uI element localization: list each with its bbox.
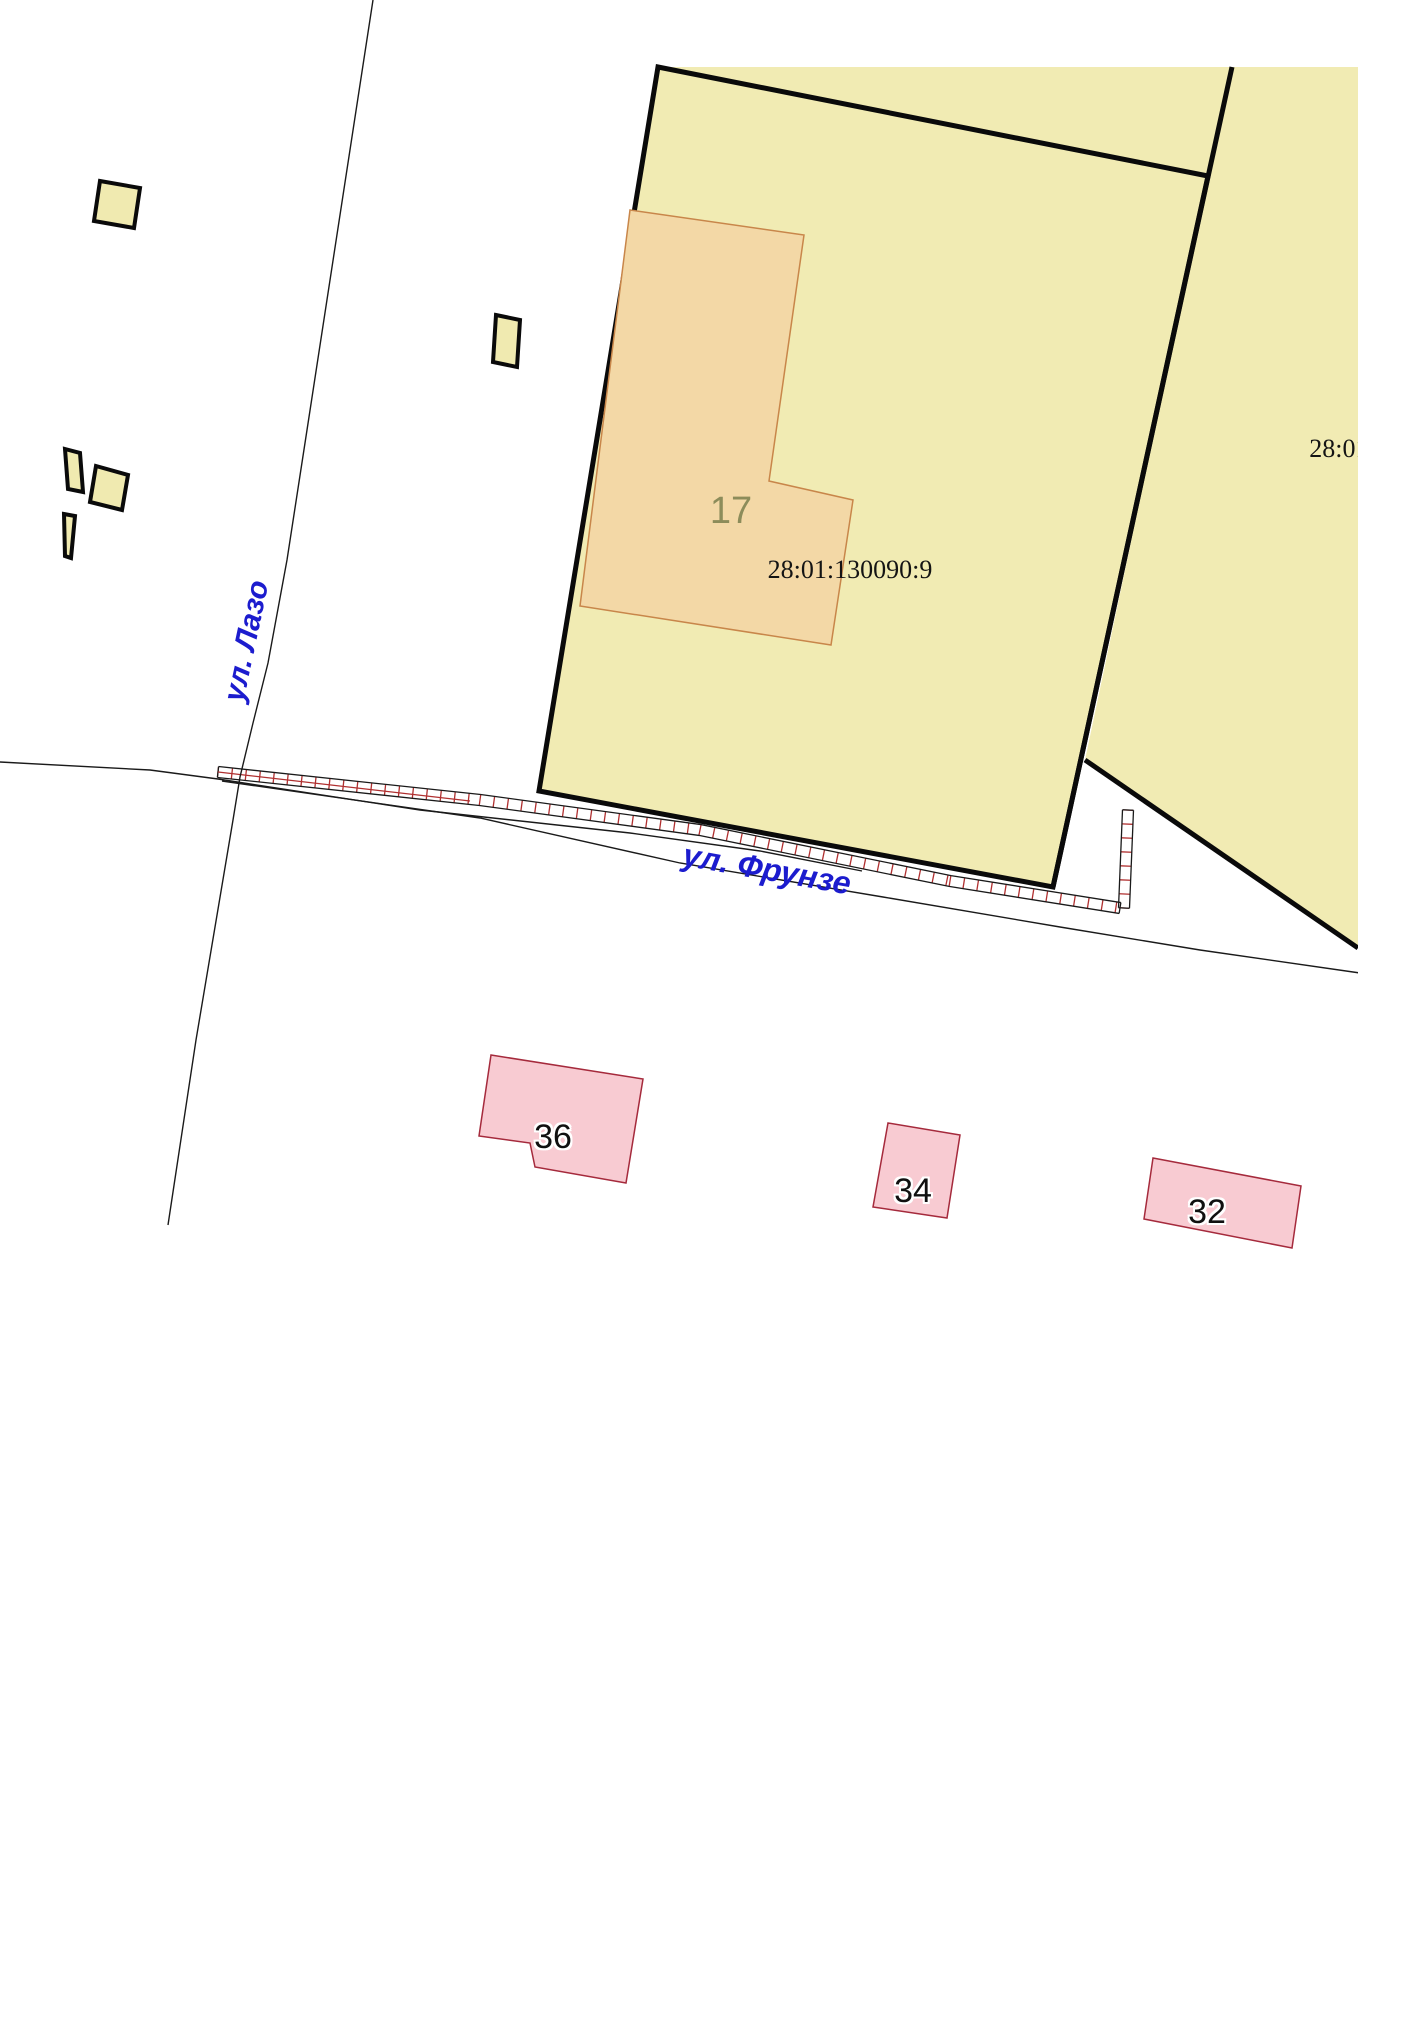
fence-line [1119, 810, 1123, 908]
fence-hatch-tick [946, 875, 948, 886]
fence-hatch-tick [604, 812, 605, 823]
fence-hatch-tick [726, 830, 728, 841]
fence-hatch-tick [454, 792, 455, 803]
fence-hatch-tick [673, 821, 674, 832]
fence-hatch-tick [905, 867, 907, 878]
road-line-lazo [168, 0, 373, 1225]
fence-hatch-tick [963, 878, 965, 889]
fence-hatch-tick [822, 850, 824, 861]
fence-hatch-tick [590, 810, 591, 821]
fence-hatch-tick [918, 869, 920, 880]
fence-hatch-tick [781, 841, 783, 852]
house-36[interactable] [479, 1055, 643, 1183]
fence-hatch-tick [426, 789, 427, 800]
small-building-1[interactable] [94, 181, 140, 228]
fence-hatch-tick [1046, 891, 1048, 902]
fence-hatch-tick [440, 790, 441, 801]
fence-hatch-tick [991, 882, 993, 893]
fence-hatch-tick [1032, 889, 1034, 900]
fence-hatch-tick [1115, 902, 1117, 913]
fence-hatch-tick [507, 798, 508, 809]
fence-hatch-tick [1074, 895, 1076, 906]
fence-hatch-tick [412, 787, 413, 798]
small-building-2[interactable] [493, 315, 520, 367]
fence-hatch-tick [877, 861, 879, 872]
map-canvas [0, 0, 1427, 2018]
fence-hatch-tick [864, 858, 866, 869]
fence-hatch-tick [384, 784, 385, 795]
fence-hatch-tick [521, 800, 522, 811]
fence-line [1129, 810, 1133, 908]
fence-hatch-tick [315, 777, 316, 788]
fence-hatch-tick [1018, 887, 1020, 898]
fence-hatch-tick [1101, 900, 1103, 911]
fence-hatch-tick [977, 880, 979, 891]
cadastral-map: 17 28:01:130090:9 28:01:1 ул. Лазо ул. Ф… [0, 0, 1427, 2018]
house-32[interactable] [1144, 1158, 1301, 1248]
fence-hatch-tick [713, 827, 715, 838]
fence-hatch-tick [932, 872, 934, 883]
fence-hatch-tick [1004, 884, 1006, 895]
fence-hatch-tick [767, 839, 769, 850]
fence-hatch-tick [809, 847, 811, 858]
fence-hatch-tick [949, 876, 951, 887]
fence-hatch-tick [632, 815, 633, 826]
fence-hatch-tick [479, 795, 480, 806]
fence-hatch-tick [549, 804, 550, 815]
fence-hatch-tick [493, 796, 494, 807]
small-building-5[interactable] [64, 514, 75, 558]
fence-hatch-tick [535, 802, 536, 813]
fence-hatch-tick [850, 855, 852, 866]
fence-hatch-tick [646, 817, 647, 828]
fence-hatch-tick [576, 808, 577, 819]
map-clip-edge [1358, 0, 1427, 2018]
fence-hatch-tick [740, 833, 742, 844]
fence-hatch-tick [754, 836, 756, 847]
fence-hatch-tick [1060, 893, 1062, 904]
fence-hatch-tick [1087, 898, 1089, 909]
fence-hatch-tick [836, 853, 838, 864]
fence-hatch-tick [660, 819, 661, 830]
fence-hatch-tick [618, 813, 619, 824]
fence-hatch-tick [398, 786, 399, 797]
fence-hatch-tick [468, 793, 469, 804]
fence-hatch-tick [795, 844, 797, 855]
fence-hatch-tick [699, 825, 701, 836]
fence-hatch-tick [329, 778, 330, 789]
small-building-3[interactable] [90, 466, 128, 510]
fence-hatch-tick [562, 806, 563, 817]
fence-hatch-tick [343, 780, 344, 791]
fence-hatch-tick [687, 823, 688, 834]
house-34[interactable] [873, 1123, 960, 1218]
fence-hatch-tick [891, 864, 893, 875]
fence-hatch-tick [371, 783, 372, 794]
small-building-4[interactable] [65, 449, 83, 492]
fence-hatch-tick [357, 781, 358, 792]
